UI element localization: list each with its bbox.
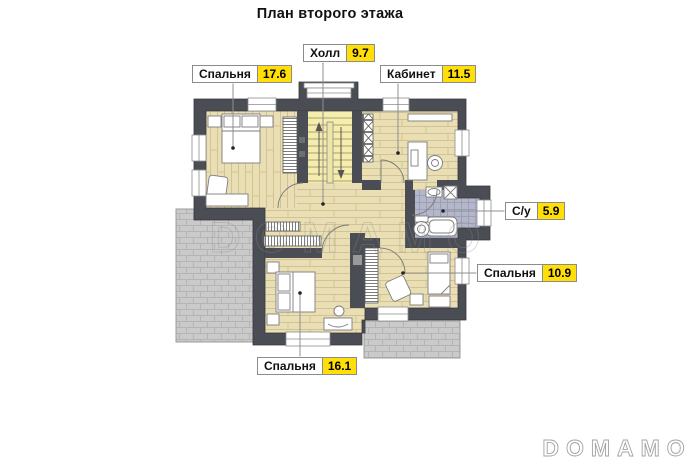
pillow <box>278 293 290 310</box>
room-area-badge: 9.7 <box>346 45 374 61</box>
room-area-badge: 17.6 <box>257 66 291 82</box>
nightstand <box>208 116 221 127</box>
wall-vent <box>299 137 305 143</box>
room-area-badge: 16.1 <box>322 358 356 374</box>
nightstand <box>429 296 450 307</box>
nightstand <box>267 314 279 325</box>
room-area-badge: 5.9 <box>537 203 565 219</box>
monitor <box>411 150 418 166</box>
room-name: Спальня <box>478 265 542 281</box>
room-label-bedroom-2: Спальня 10.9 <box>477 264 577 282</box>
stool <box>334 306 344 316</box>
floor-plan-svg: DOMAMO DOMAMO <box>0 0 700 467</box>
side-table <box>410 294 423 305</box>
room-label-bathroom: С/у 5.9 <box>505 202 565 220</box>
room-area-badge: 11.5 <box>442 66 476 82</box>
wardrobe-bedroom-1 <box>283 117 297 173</box>
pillow <box>224 116 240 127</box>
desk-bedroom-1 <box>206 194 248 206</box>
sink-bowl <box>428 189 440 196</box>
pillow <box>278 274 290 291</box>
brand-logo: DOMAMO <box>542 435 691 461</box>
office-chair-inner <box>432 160 439 167</box>
room-area-badge: 10.9 <box>542 265 576 281</box>
wardrobe-office <box>362 114 373 162</box>
room-label-bedroom-1: Спальня 17.6 <box>192 65 292 83</box>
dormer-sill <box>304 83 354 88</box>
nightstand <box>267 262 279 273</box>
room-label-office: Кабинет 11.5 <box>380 65 476 83</box>
room-name: Спальня <box>193 66 257 82</box>
room-label-bedroom-3: Спальня 16.1 <box>257 357 357 375</box>
room-name: Спальня <box>258 358 322 374</box>
room-label-hall: Холл 9.7 <box>303 44 375 62</box>
pillow <box>242 116 258 127</box>
room-name: Холл <box>304 45 346 61</box>
terrace-bottom-right <box>364 320 460 358</box>
office-shelf <box>408 114 452 121</box>
room-name: Кабинет <box>381 66 442 82</box>
floor-plan-page: План второго этажа <box>0 0 700 467</box>
nightstand <box>260 116 273 127</box>
watermark-text: DOMAMO <box>210 214 495 262</box>
room-name: С/у <box>506 203 537 219</box>
wall-vent <box>299 151 305 157</box>
